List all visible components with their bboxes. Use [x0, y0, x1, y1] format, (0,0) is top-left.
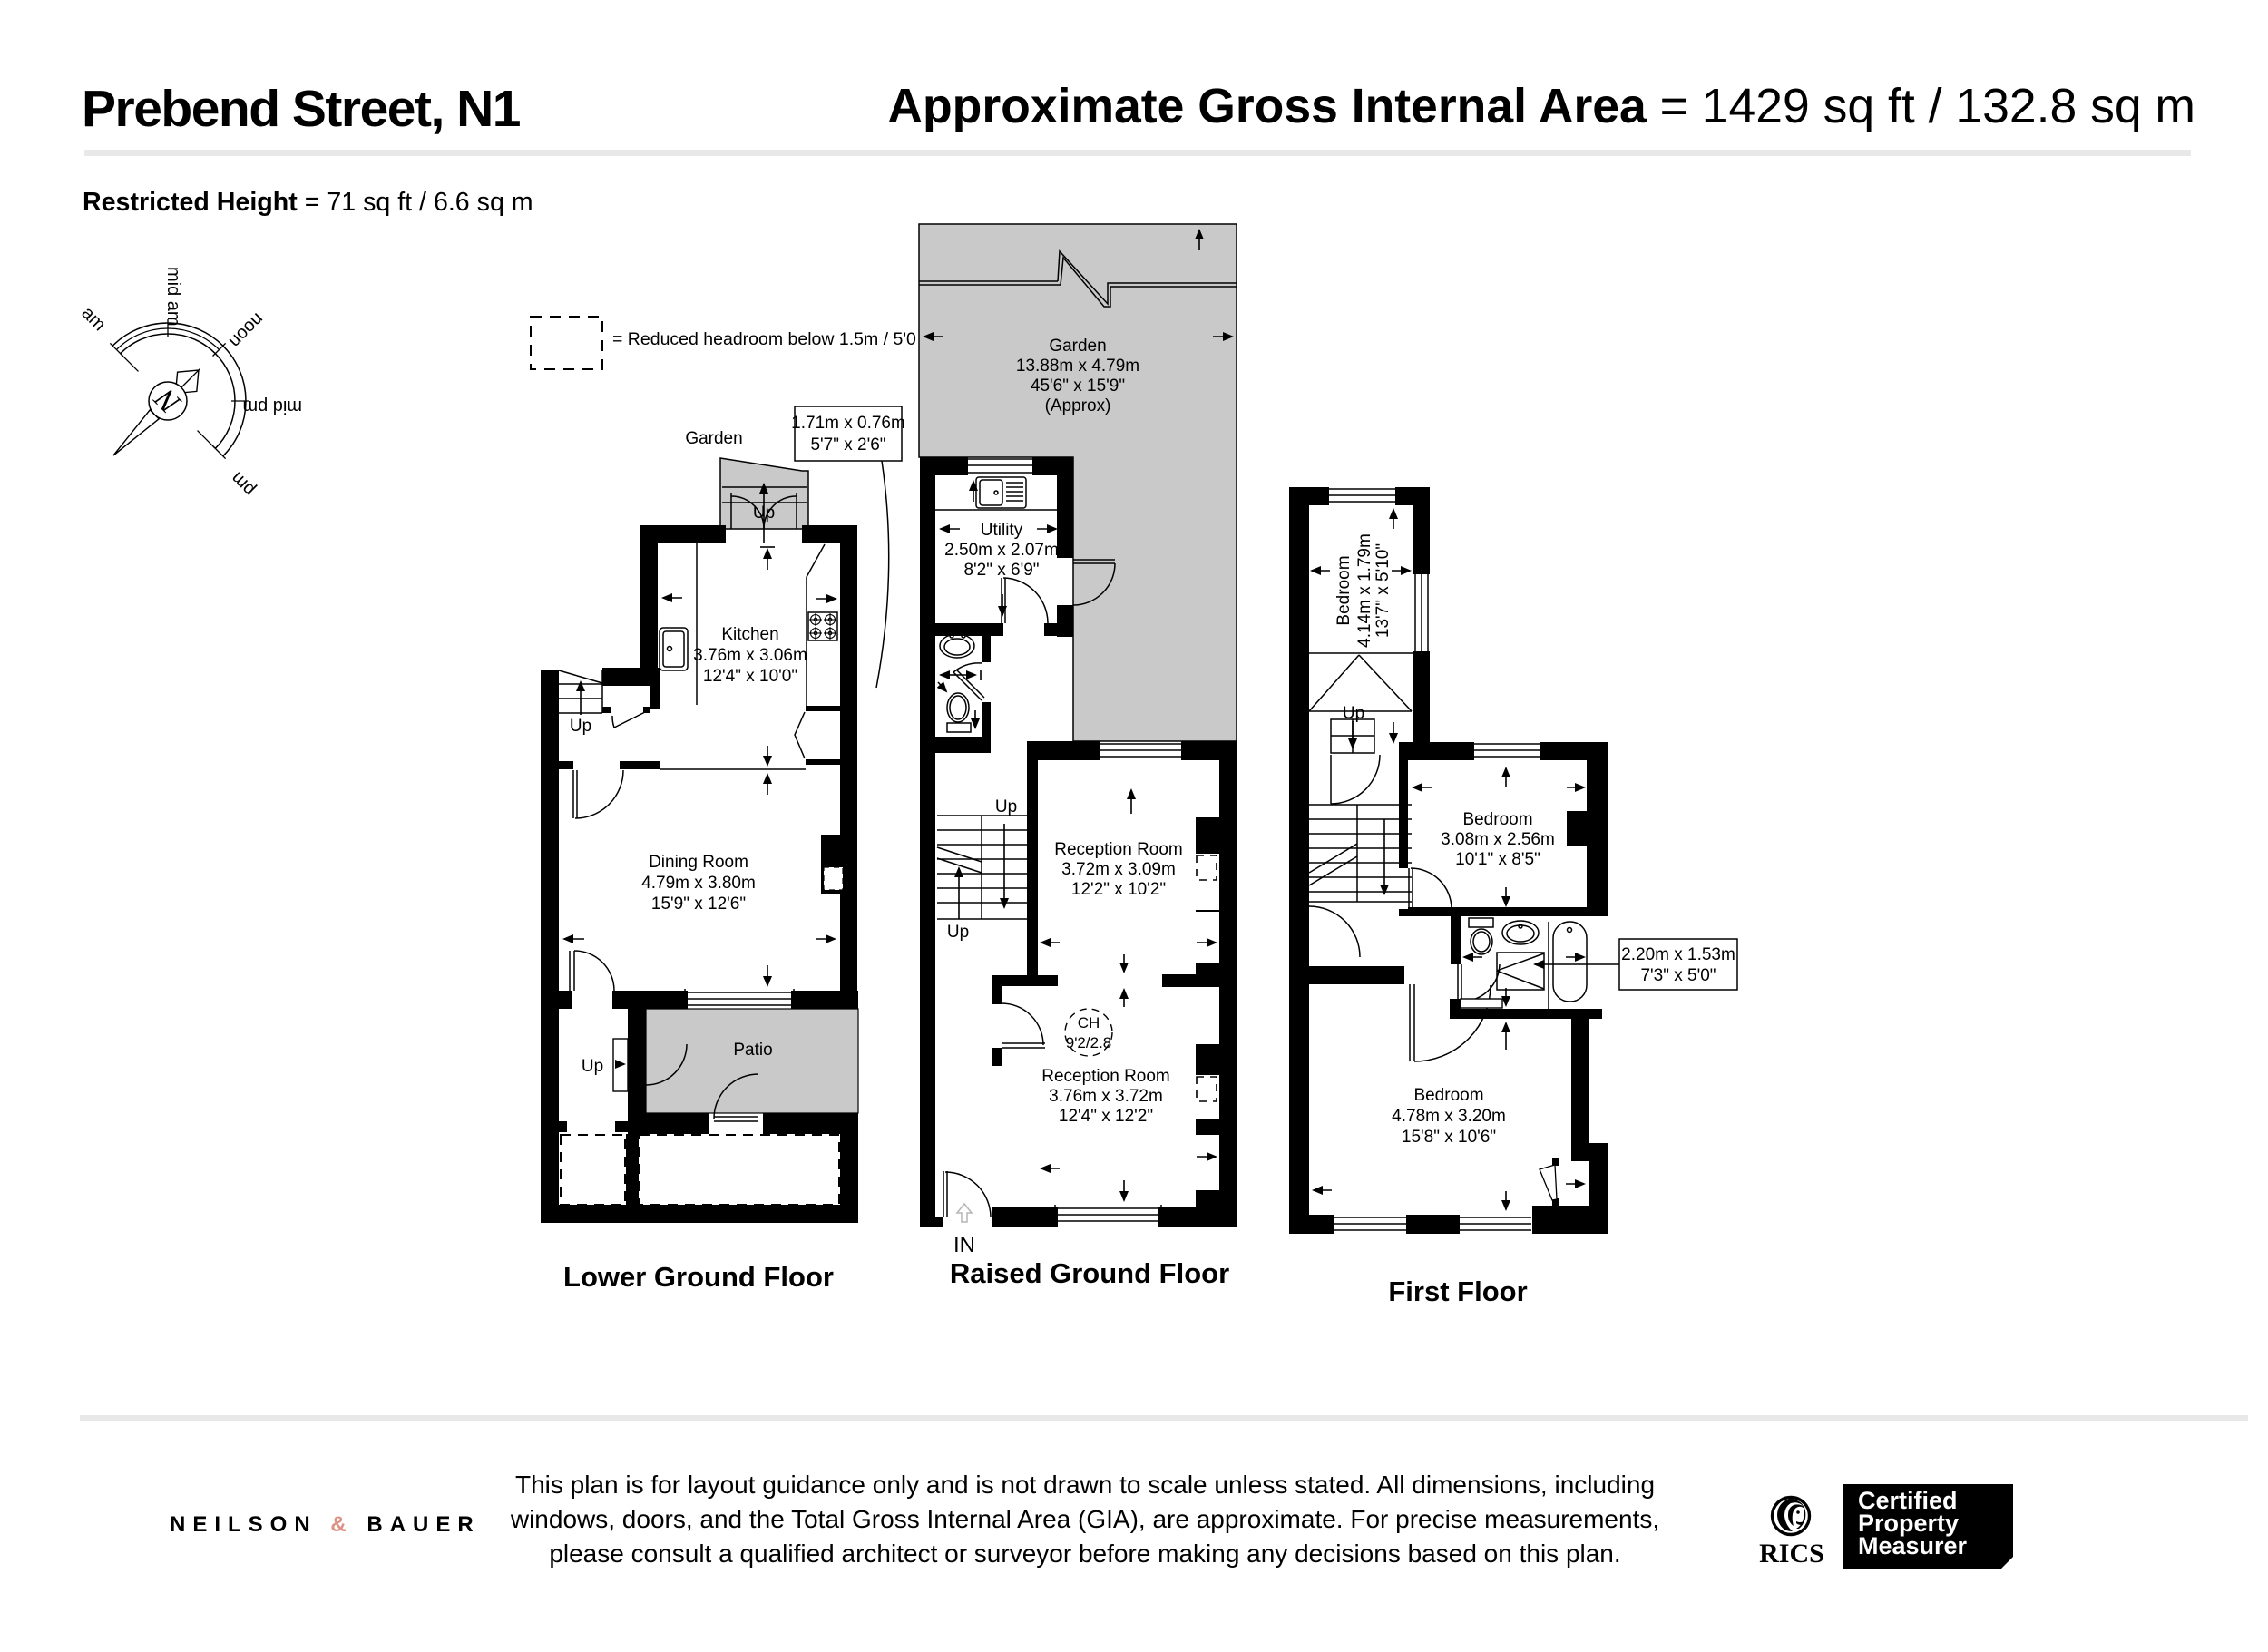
svg-text:3.76m x 3.72m: 3.76m x 3.72m	[1049, 1087, 1163, 1106]
svg-text:3.08m x 2.56m: 3.08m x 2.56m	[1441, 830, 1555, 849]
svg-text:13.88m x 4.79m: 13.88m x 4.79m	[1016, 357, 1139, 376]
svg-text:Up: Up	[753, 503, 775, 523]
svg-text:10'1" x 8'5": 10'1" x 8'5"	[1455, 850, 1540, 869]
svg-text:Restricted Height = 71 sq ft /: Restricted Height = 71 sq ft / 6.6 sq m	[83, 188, 533, 217]
svg-text:Bedroom: Bedroom	[1413, 1086, 1483, 1105]
svg-text:13'7" x 5'10": 13'7" x 5'10"	[1374, 543, 1393, 638]
svg-text:Raised Ground Floor: Raised Ground Floor	[950, 1257, 1229, 1289]
svg-text:mid am: mid am	[163, 267, 183, 327]
svg-text:5'7" x 2'6": 5'7" x 2'6"	[810, 435, 885, 455]
svg-text:3.76m x 3.06m: 3.76m x 3.06m	[693, 646, 807, 665]
svg-text:Bedroom: Bedroom	[1334, 555, 1354, 625]
svg-text:Dining Room: Dining Room	[649, 853, 748, 872]
svg-text:IN: IN	[953, 1233, 975, 1257]
svg-text:Garden: Garden	[1049, 337, 1106, 356]
svg-text:Garden: Garden	[685, 429, 742, 448]
svg-text:12'2" x 10'2": 12'2" x 10'2"	[1071, 880, 1166, 899]
svg-text:windows, doors, and the Total: windows, doors, and the Total Gross Inte…	[510, 1505, 1659, 1533]
svg-text:2.20m x 1.53m: 2.20m x 1.53m	[1621, 945, 1735, 964]
svg-text:Patio: Patio	[733, 1041, 772, 1060]
svg-text:7'3" x 5'0": 7'3" x 5'0"	[1640, 966, 1716, 985]
svg-text:(Approx): (Approx)	[1045, 396, 1111, 415]
svg-text:15'9" x 12'6": 15'9" x 12'6"	[651, 894, 746, 914]
svg-text:please consult a qualified arc: please consult a qualified architect or …	[549, 1540, 1620, 1568]
svg-text:4.14m x 1.79m: 4.14m x 1.79m	[1355, 533, 1374, 648]
svg-text:8'2" x 6'9": 8'2" x 6'9"	[963, 561, 1039, 580]
svg-text:2.50m x 2.07m: 2.50m x 2.07m	[944, 541, 1059, 560]
svg-text:Bedroom: Bedroom	[1462, 810, 1532, 829]
svg-text:45'6" x 15'9": 45'6" x 15'9"	[1031, 376, 1125, 396]
svg-text:Up: Up	[947, 923, 969, 942]
svg-text:Up: Up	[570, 717, 591, 736]
svg-text:4.79m x 3.80m: 4.79m x 3.80m	[641, 874, 756, 893]
svg-text:Up: Up	[995, 797, 1017, 816]
svg-text:1.71m x 0.76m: 1.71m x 0.76m	[791, 414, 905, 433]
svg-text:CH: CH	[1078, 1014, 1100, 1031]
svg-text:Measurer: Measurer	[1858, 1532, 1968, 1559]
svg-text:First Floor: First Floor	[1388, 1276, 1527, 1307]
svg-text:Reception Room: Reception Room	[1041, 1067, 1170, 1086]
svg-text:Kitchen: Kitchen	[721, 625, 778, 644]
svg-text:4.78m x 3.20m: 4.78m x 3.20m	[1392, 1107, 1506, 1126]
svg-text:RICS: RICS	[1759, 1539, 1824, 1569]
svg-text:Reception Room: Reception Room	[1054, 840, 1183, 859]
svg-text:mid pm: mid pm	[242, 396, 302, 416]
svg-text:3.72m x 3.09m: 3.72m x 3.09m	[1061, 860, 1176, 879]
svg-text:9'2/2.8: 9'2/2.8	[1066, 1034, 1112, 1051]
svg-text:NEILSON & BAUER: NEILSON & BAUER	[170, 1512, 481, 1537]
svg-text:15'8" x 10'6": 15'8" x 10'6"	[1402, 1128, 1496, 1147]
svg-text:This plan is for layout guidan: This plan is for layout guidance only an…	[515, 1471, 1655, 1499]
svg-text:Utility: Utility	[981, 521, 1023, 540]
svg-text:12'4" x 10'0": 12'4" x 10'0"	[703, 667, 797, 686]
svg-text:Prebend Street, N1: Prebend Street, N1	[82, 80, 521, 138]
svg-text:Up: Up	[1343, 704, 1364, 723]
svg-text:Approximate Gross Internal Are: Approximate Gross Internal Area = 1429 s…	[887, 80, 2195, 133]
svg-text:= Reduced headroom below 1.5m: = Reduced headroom below 1.5m / 5'0	[612, 329, 916, 349]
svg-text:Lower Ground Floor: Lower Ground Floor	[563, 1261, 834, 1293]
svg-text:Up: Up	[582, 1057, 603, 1076]
svg-text:12'4" x 12'2": 12'4" x 12'2"	[1059, 1107, 1153, 1126]
